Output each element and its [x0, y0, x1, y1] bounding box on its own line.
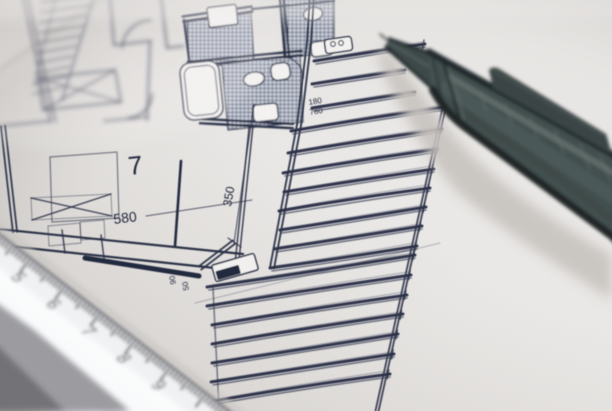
svg-text:580: 580: [112, 208, 137, 227]
